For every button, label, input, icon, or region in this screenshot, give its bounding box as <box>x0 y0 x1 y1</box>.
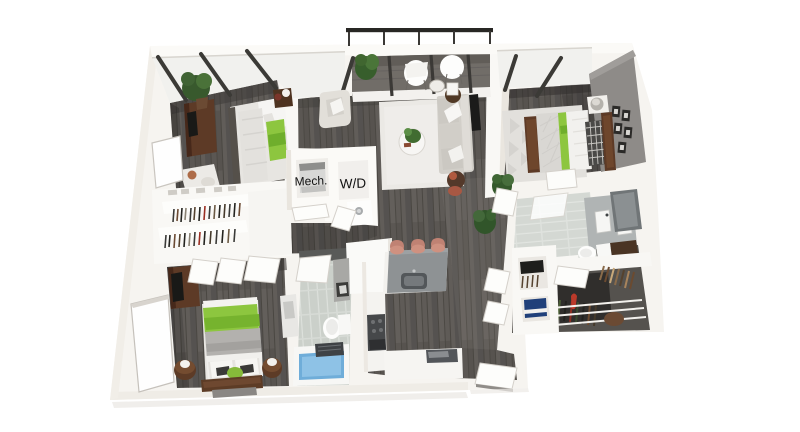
svg-text:W/D: W/D <box>340 176 367 192</box>
svg-text:Mech.: Mech. <box>294 173 327 188</box>
